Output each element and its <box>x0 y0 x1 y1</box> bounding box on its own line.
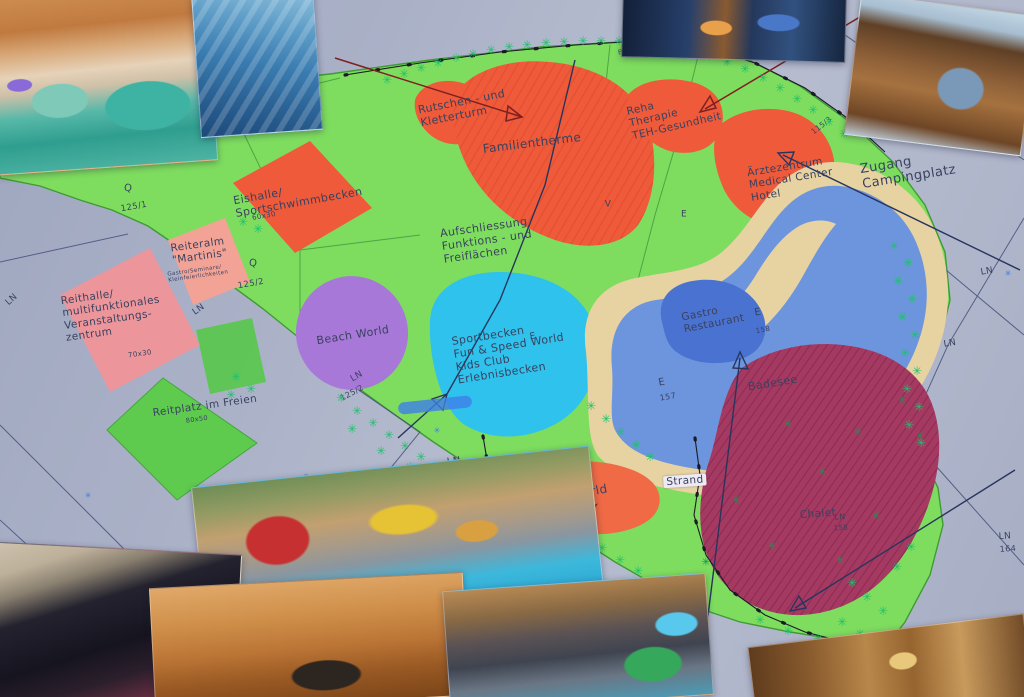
site-plan-photo: BAULANDGRENZE125/9187VZugang Campingplat… <box>0 0 1024 697</box>
photo-indoor-pool-hall <box>0 0 218 175</box>
photo-blue-slide-tower <box>191 0 323 138</box>
photo-indoor-pool-green-slide <box>442 573 714 697</box>
photo-sauna-interior <box>149 572 469 697</box>
zone-green-rect <box>196 318 266 394</box>
photo-chalet-hotel <box>844 0 1024 156</box>
zone-reithalle <box>60 248 200 392</box>
photo-night-pool <box>621 0 847 63</box>
zone-reitplatz <box>107 378 257 500</box>
